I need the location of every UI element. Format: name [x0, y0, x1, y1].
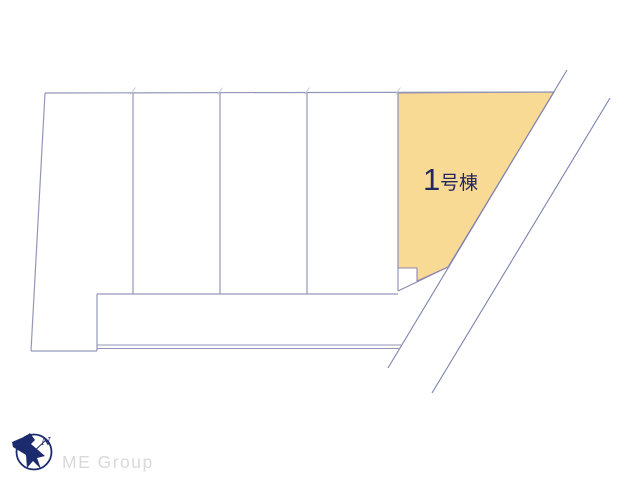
compass-north-letter: N: [40, 435, 51, 448]
left-boundary-line: [31, 93, 45, 351]
site-plan-page: 1 号棟 N ME Group: [0, 0, 640, 480]
company-logo: N ME Group: [12, 433, 154, 472]
site-plan-drawing: 1 号棟 N ME Group: [0, 0, 640, 480]
boundary-tick-marks: [131, 88, 401, 95]
building-label-number: 1: [423, 162, 440, 197]
logo-wordmark: ME Group: [62, 452, 154, 472]
building-label-suffix: 号棟: [440, 172, 478, 194]
